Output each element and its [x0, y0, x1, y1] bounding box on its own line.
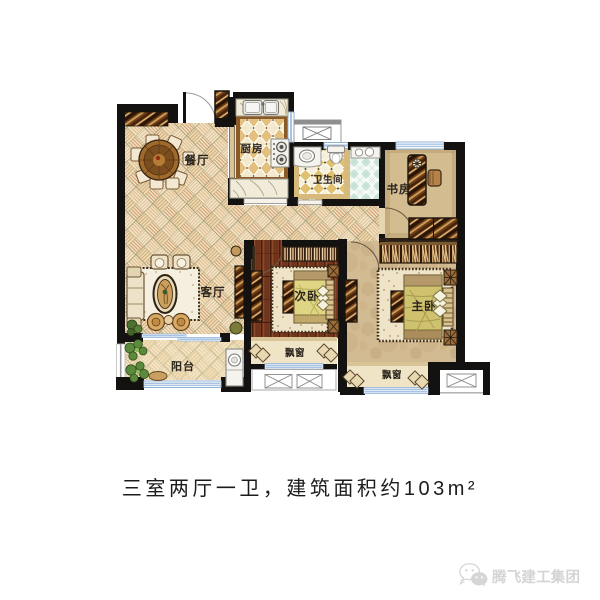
svg-text:次卧: 次卧 [295, 289, 320, 303]
svg-text:书房: 书房 [387, 182, 412, 196]
svg-text:厨房: 厨房 [241, 142, 264, 155]
svg-text:卫生间: 卫生间 [313, 174, 343, 186]
svg-text:主卧: 主卧 [412, 299, 437, 313]
svg-text:飘窗: 飘窗 [381, 369, 402, 381]
svg-text:飘窗: 飘窗 [284, 347, 305, 359]
svg-text:阳台: 阳台 [171, 359, 195, 373]
svg-text:餐厅: 餐厅 [184, 153, 210, 167]
svg-text:客厅: 客厅 [200, 285, 226, 299]
